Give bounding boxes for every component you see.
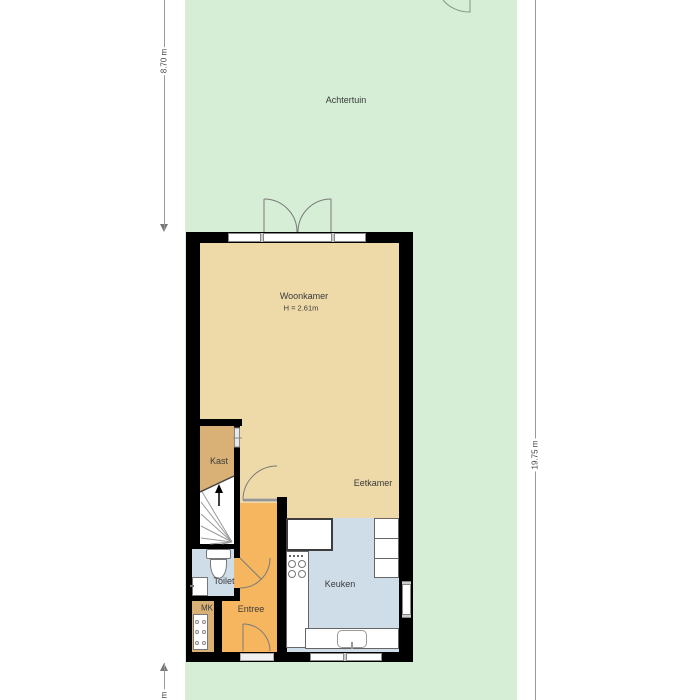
tap-icon xyxy=(190,585,194,587)
room-entree-floor xyxy=(240,503,277,652)
window-mullion xyxy=(343,653,347,661)
window-mullion xyxy=(402,614,411,618)
room-label-woonkamer: Woonkamer xyxy=(280,291,328,301)
room-label-eetkamer: Eetkamer xyxy=(354,478,393,488)
room-label-achtertuin: Achtertuin xyxy=(326,95,367,105)
room-label-toilet: Toilet xyxy=(213,576,234,586)
dimension-label-garden: 8.70 m xyxy=(160,47,169,75)
dimension-line-garden xyxy=(164,0,165,231)
toilet-tank-fixture xyxy=(206,549,231,559)
window-right-wall xyxy=(402,581,411,618)
room-label-entree: Entree xyxy=(238,604,265,614)
window-mullion xyxy=(331,233,335,242)
kitchen-counter-block xyxy=(286,518,333,551)
dimension-arrows xyxy=(160,224,168,671)
faucet-icon xyxy=(351,642,353,649)
stove-fixture xyxy=(288,560,308,581)
floorplan: Achtertuin Woonkamer H = 2.61m Eetkamer … xyxy=(0,0,700,700)
stove-knobs xyxy=(289,555,307,558)
room-label-woonkamer-height: H = 2.61m xyxy=(284,304,319,313)
wall-mk-right xyxy=(214,601,222,652)
room-label-kast: Kast xyxy=(210,456,228,466)
room-label-mk: MK xyxy=(201,604,213,613)
dimension-line-plot xyxy=(535,0,536,700)
meter-panel-fixture xyxy=(193,614,208,650)
front-door-threshold xyxy=(240,653,274,661)
dimension-label-plot: 19.75 m xyxy=(531,439,540,472)
toilet-sink-fixture xyxy=(192,577,208,596)
room-label-keuken: Keuken xyxy=(325,579,356,589)
window-top-wall xyxy=(228,233,366,242)
window-mullion xyxy=(260,233,264,242)
toilet-doorway-gap xyxy=(234,558,240,588)
window-mullion xyxy=(402,581,411,585)
kitchen-counter-right xyxy=(374,518,399,578)
dimension-label-bottom: m xyxy=(160,690,169,700)
